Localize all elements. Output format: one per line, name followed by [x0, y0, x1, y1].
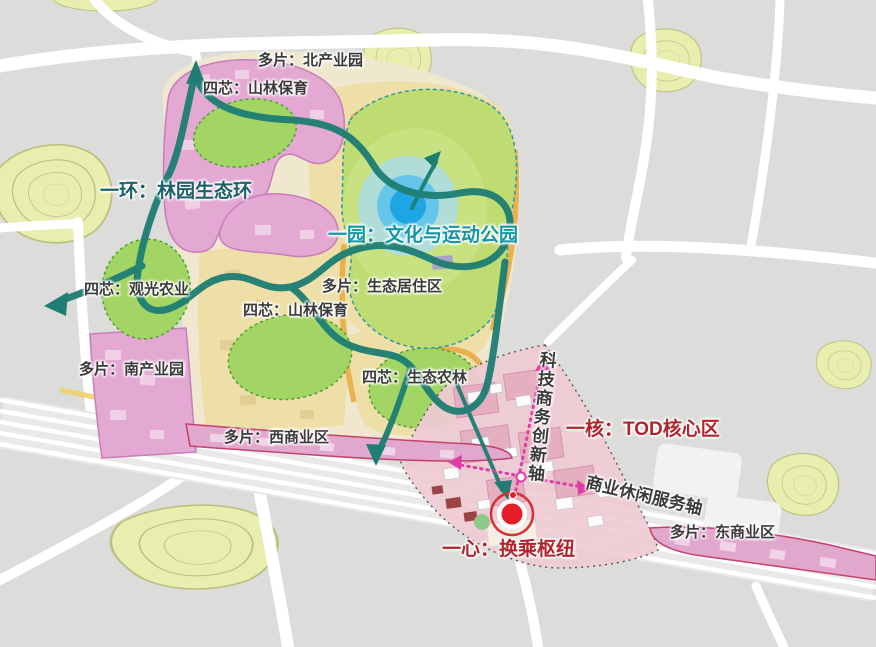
- planning-map: 多片：北产业园四芯：山林保育一环：林园生态环一园：文化与运动公园四芯：观光农业多…: [0, 0, 876, 647]
- south-industrial-park-zone: [90, 328, 196, 458]
- axis-node-icon: [517, 473, 526, 482]
- culture-sports-park-zone: [342, 89, 517, 348]
- map-artwork: [0, 0, 876, 647]
- park-center-marker: [358, 156, 458, 256]
